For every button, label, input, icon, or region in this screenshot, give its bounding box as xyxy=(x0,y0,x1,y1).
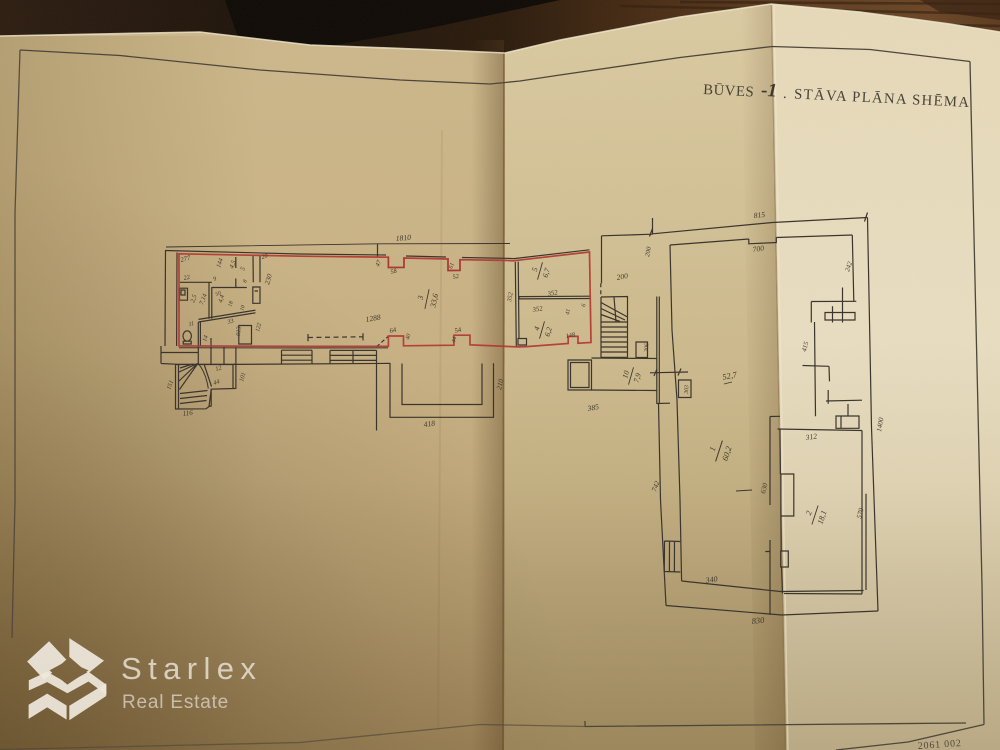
svg-text:2061 002: 2061 002 xyxy=(917,738,962,750)
